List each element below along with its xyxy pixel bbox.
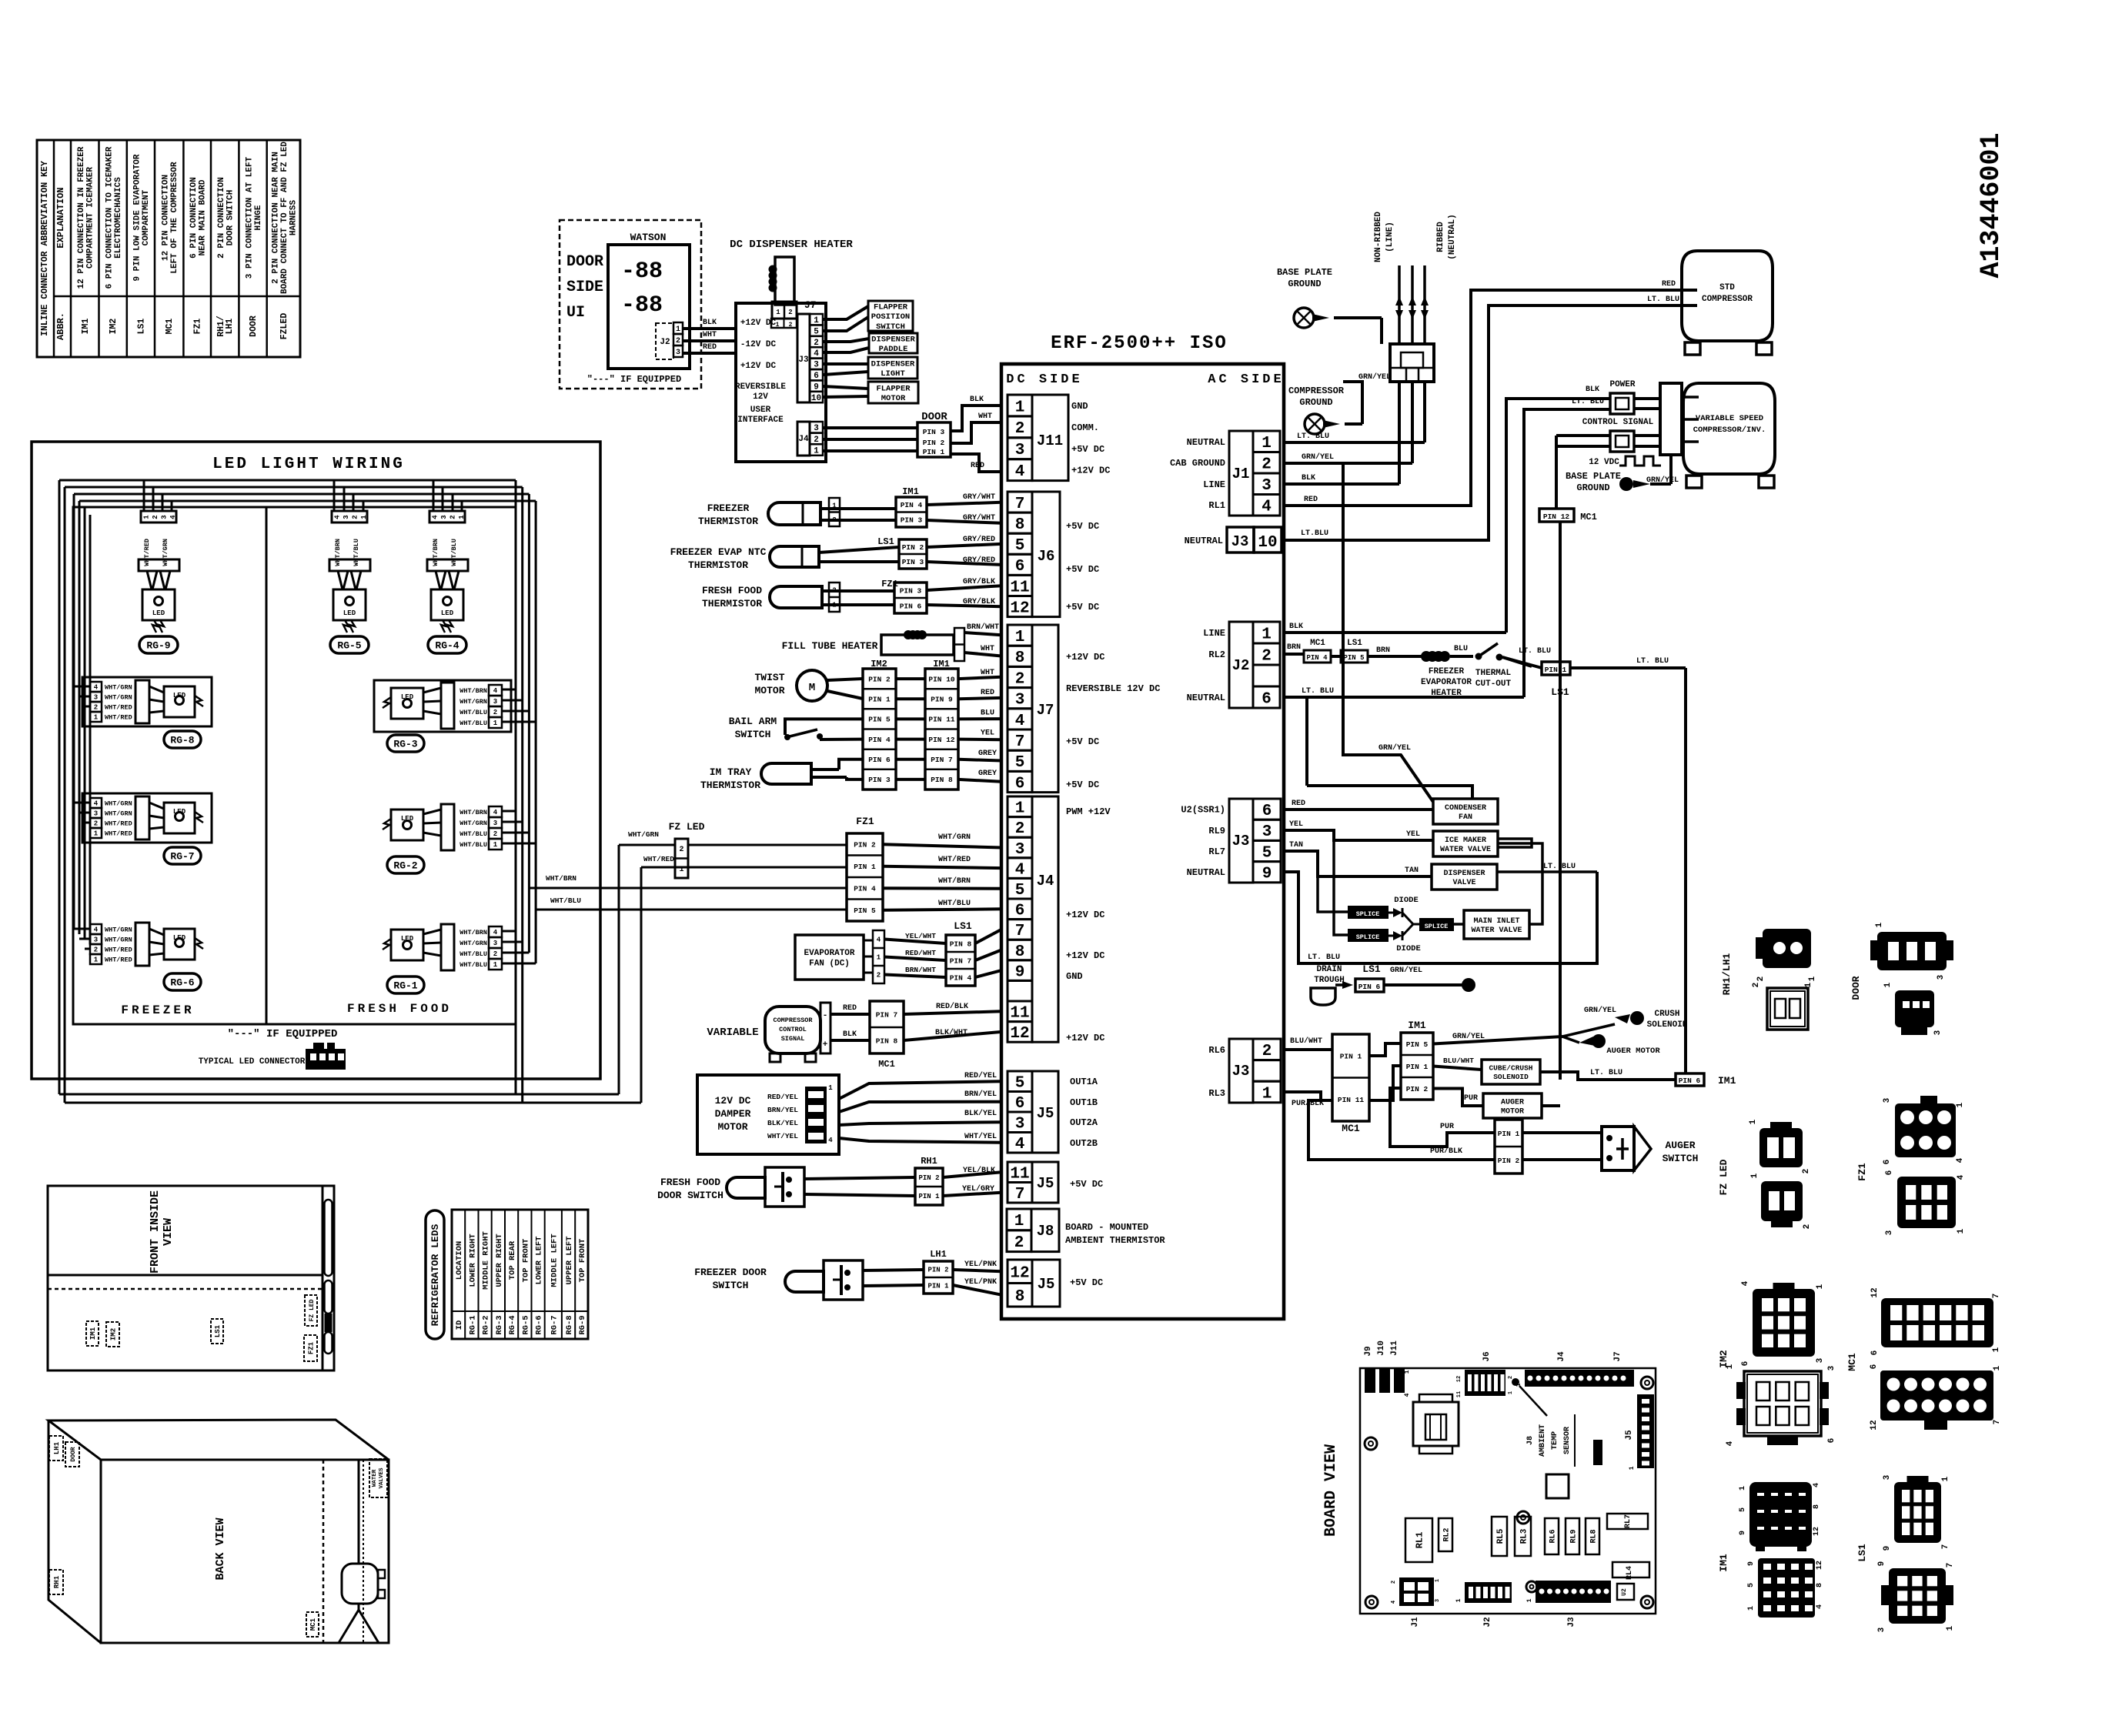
svg-text:LT. BLU: LT. BLU — [1590, 1069, 1622, 1077]
svg-text:(LINE): (LINE) — [1385, 222, 1395, 252]
svg-text:4: 4 — [1015, 713, 1025, 730]
svg-text:1: 1 — [1262, 626, 1272, 643]
svg-text:PIN 8: PIN 8 — [876, 1037, 898, 1045]
svg-text:REFRIGERATOR LEDS: REFRIGERATOR LEDS — [429, 1224, 441, 1326]
svg-text:3: 3 — [1015, 692, 1025, 709]
svg-text:5: 5 — [1015, 1075, 1025, 1093]
svg-text:DOOR: DOOR — [566, 253, 603, 271]
svg-text:UPPER RIGHT: UPPER RIGHT — [495, 1234, 504, 1287]
svg-text:LED LIGHT WIRING: LED LIGHT WIRING — [212, 456, 405, 473]
svg-text:4: 4 — [1262, 499, 1272, 516]
svg-text:+5V DC: +5V DC — [1066, 521, 1099, 532]
svg-text:WHT/GRN: WHT/GRN — [105, 800, 132, 808]
svg-text:WHT/BLU: WHT/BLU — [450, 539, 458, 566]
svg-text:GND: GND — [1066, 971, 1083, 982]
svg-text:12 PIN CONNECTION IN FREEZER: 12 PIN CONNECTION IN FREEZER — [77, 146, 86, 289]
svg-text:+5V DC: +5V DC — [1066, 564, 1099, 575]
svg-text:2: 2 — [1015, 820, 1025, 838]
svg-text:TAN: TAN — [1289, 841, 1303, 850]
svg-text:+12V DC: +12V DC — [1066, 652, 1104, 663]
svg-text:SOLENOID: SOLENOID — [1493, 1073, 1529, 1081]
svg-text:7: 7 — [1015, 923, 1025, 940]
svg-text:3: 3 — [493, 698, 497, 706]
svg-text:MOTOR: MOTOR — [881, 394, 906, 403]
svg-text:GRY/RED: GRY/RED — [963, 535, 995, 544]
svg-text:WHT/BLU: WHT/BLU — [938, 899, 971, 908]
svg-text:DAMPER: DAMPER — [715, 1108, 751, 1120]
svg-text:WHT/BLU: WHT/BLU — [459, 961, 487, 969]
svg-text:VALVES: VALVES — [379, 1467, 385, 1489]
svg-text:2: 2 — [94, 704, 98, 712]
svg-text:J7: J7 — [804, 299, 817, 311]
svg-text:WHT/BRN: WHT/BRN — [432, 539, 439, 566]
svg-text:LS1: LS1 — [1551, 686, 1569, 698]
svg-text:5: 5 — [1015, 537, 1025, 555]
svg-text:8: 8 — [1015, 649, 1025, 667]
svg-text:NEUTRAL: NEUTRAL — [1187, 693, 1225, 703]
svg-text:FRESH FOOD: FRESH FOOD — [660, 1177, 720, 1188]
svg-text:PIN 2: PIN 2 — [927, 1267, 948, 1274]
svg-text:12: 12 — [1456, 1376, 1462, 1382]
svg-text:3: 3 — [493, 820, 497, 827]
svg-text:2: 2 — [1015, 670, 1025, 688]
svg-text:YEL: YEL — [981, 729, 994, 738]
svg-text:DOOR SWITCH: DOOR SWITCH — [657, 1190, 723, 1201]
svg-text:PIN 12: PIN 12 — [1543, 512, 1570, 521]
svg-text:3: 3 — [94, 936, 98, 944]
svg-text:12: 12 — [1870, 1420, 1879, 1430]
svg-text:LIGHT: LIGHT — [881, 369, 905, 379]
svg-text:YEL/WHT: YEL/WHT — [905, 932, 936, 940]
svg-text:3: 3 — [1933, 1030, 1943, 1035]
svg-text:J4: J4 — [1037, 873, 1054, 890]
svg-text:COMPARTMENT: COMPARTMENT — [142, 189, 151, 245]
svg-text:PIN 1: PIN 1 — [1406, 1063, 1429, 1071]
svg-text:3: 3 — [814, 424, 819, 433]
svg-text:RG-6: RG-6 — [535, 1315, 544, 1334]
svg-text:WHT/GRN: WHT/GRN — [105, 926, 132, 934]
svg-text:2: 2 — [679, 846, 683, 854]
svg-text:J5: J5 — [1038, 1276, 1055, 1293]
svg-text:1: 1 — [1526, 1598, 1533, 1602]
svg-text:PIN 5: PIN 5 — [868, 716, 891, 724]
svg-text:LOWER LEFT: LOWER LEFT — [535, 1236, 544, 1284]
svg-text:ICE MAKER: ICE MAKER — [1445, 836, 1486, 845]
svg-text:DRAIN: DRAIN — [1316, 965, 1342, 974]
svg-text:LT. BLU: LT. BLU — [1647, 295, 1679, 304]
svg-text:YEL/BLK: YEL/BLK — [963, 1166, 995, 1175]
svg-text:PUR: PUR — [1440, 1123, 1454, 1131]
svg-text:UI: UI — [566, 304, 585, 322]
svg-text:RG-4: RG-4 — [435, 640, 459, 652]
svg-text:3: 3 — [676, 349, 680, 357]
svg-text:THERMISTOR: THERMISTOR — [702, 598, 762, 609]
svg-text:1: 1 — [877, 954, 881, 962]
svg-text:NEUTRAL: NEUTRAL — [1187, 437, 1225, 448]
svg-text:MC1: MC1 — [1310, 639, 1325, 648]
svg-text:2: 2 — [493, 709, 497, 716]
svg-text:VARIABLE SPEED: VARIABLE SPEED — [1696, 414, 1763, 423]
svg-text:IM1: IM1 — [902, 486, 919, 497]
svg-text:WHT/BRN: WHT/BRN — [459, 687, 487, 695]
svg-text:ABBR.: ABBR. — [55, 312, 66, 340]
svg-text:+12V DC: +12V DC — [740, 319, 777, 328]
svg-text:IM2: IM2 — [109, 319, 119, 335]
svg-text:RL1: RL1 — [1208, 500, 1225, 511]
svg-text:PIN 1: PIN 1 — [1498, 1130, 1520, 1138]
svg-text:RED: RED — [971, 462, 984, 470]
svg-text:FZLED: FZLED — [279, 313, 289, 340]
svg-text:BLK: BLK — [1302, 474, 1315, 482]
svg-text:RG-5: RG-5 — [337, 640, 361, 652]
svg-text:RL2: RL2 — [1208, 649, 1225, 660]
svg-text:LS1: LS1 — [877, 536, 894, 547]
svg-text:2: 2 — [152, 515, 159, 519]
svg-text:GRN/YEL: GRN/YEL — [1584, 1006, 1616, 1015]
svg-text:RG-7: RG-7 — [170, 851, 194, 863]
svg-text:12: 12 — [1813, 1527, 1821, 1536]
svg-text:DOOR: DOOR — [1850, 976, 1862, 1000]
svg-text:CRUSH: CRUSH — [1654, 1010, 1679, 1019]
svg-text:RL7: RL7 — [1624, 1514, 1632, 1528]
svg-text:SENSOR: SENSOR — [1563, 1427, 1572, 1454]
svg-text:FLAPPER: FLAPPER — [876, 384, 911, 393]
svg-text:YEL: YEL — [1289, 820, 1303, 829]
svg-text:1: 1 — [94, 956, 99, 964]
svg-text:1: 1 — [1875, 922, 1884, 927]
svg-text:BLU: BLU — [981, 709, 994, 717]
svg-text:4: 4 — [334, 515, 342, 519]
svg-text:PIN 1: PIN 1 — [1545, 666, 1567, 674]
svg-text:LED: LED — [152, 609, 165, 617]
svg-text:RED: RED — [1662, 280, 1676, 289]
svg-text:FREEZER: FREEZER — [1429, 667, 1465, 676]
svg-text:J2: J2 — [660, 338, 670, 347]
svg-text:6: 6 — [1870, 1350, 1880, 1356]
svg-text:TROUGH: TROUGH — [1314, 976, 1345, 985]
svg-text:J3: J3 — [1232, 1063, 1250, 1080]
svg-text:WHT/BLU: WHT/BLU — [459, 950, 487, 958]
svg-text:J5: J5 — [1037, 1105, 1054, 1122]
svg-text:PIN 7: PIN 7 — [950, 956, 972, 965]
svg-text:+12V DC: +12V DC — [1071, 466, 1110, 476]
svg-text:J7: J7 — [1037, 702, 1054, 719]
svg-text:J8: J8 — [1037, 1223, 1054, 1240]
svg-text:J3: J3 — [1232, 833, 1250, 850]
svg-text:LED: LED — [173, 808, 186, 816]
svg-text:1: 1 — [676, 325, 680, 334]
svg-text:BLK/YEL: BLK/YEL — [964, 1109, 997, 1118]
svg-text:LINE: LINE — [1203, 479, 1225, 490]
svg-text:2: 2 — [1752, 983, 1761, 988]
svg-text:PIN 4: PIN 4 — [854, 885, 876, 893]
svg-text:-: - — [823, 1011, 828, 1020]
svg-text:WHT/GRN: WHT/GRN — [628, 830, 659, 839]
svg-text:GRY/RED: GRY/RED — [963, 556, 995, 565]
svg-text:PWM +12V: PWM +12V — [1066, 806, 1111, 817]
svg-text:3: 3 — [1877, 1627, 1886, 1632]
svg-text:FAN: FAN — [1459, 813, 1472, 822]
svg-text:1: 1 — [1015, 800, 1025, 818]
svg-text:IM1: IM1 — [1408, 1020, 1426, 1031]
svg-text:IM1: IM1 — [81, 319, 91, 335]
svg-text:+5V DC: +5V DC — [1070, 1277, 1103, 1288]
svg-text:4: 4 — [94, 684, 99, 692]
svg-text:BLK/YEL: BLK/YEL — [767, 1119, 798, 1127]
svg-text:PIN 1: PIN 1 — [918, 1193, 940, 1200]
svg-text:PIN 6: PIN 6 — [900, 602, 922, 610]
svg-text:WHT/BLU: WHT/BLU — [353, 539, 360, 566]
svg-text:GRN/YEL: GRN/YEL — [1452, 1032, 1485, 1041]
svg-text:4: 4 — [94, 800, 99, 808]
svg-text:SPLICE: SPLICE — [1356, 910, 1380, 918]
svg-text:GRY/BLK: GRY/BLK — [963, 577, 995, 586]
svg-text:LED: LED — [401, 815, 414, 823]
svg-text:RL9: RL9 — [1208, 826, 1225, 836]
svg-text:1: 1 — [1015, 629, 1025, 646]
svg-text:BRN/YEL: BRN/YEL — [767, 1106, 798, 1114]
svg-text:+12V DC: +12V DC — [1066, 910, 1104, 920]
svg-text:9: 9 — [1877, 1561, 1886, 1567]
svg-text:1: 1 — [493, 961, 498, 969]
svg-text:1: 1 — [1014, 1213, 1024, 1230]
svg-text:OUT2A: OUT2A — [1070, 1117, 1098, 1128]
svg-text:1: 1 — [493, 719, 498, 727]
svg-text:WHT/RED: WHT/RED — [105, 946, 132, 954]
svg-text:BLK: BLK — [843, 1030, 857, 1039]
svg-text:WHT/RED: WHT/RED — [105, 820, 132, 828]
svg-text:PIN 12: PIN 12 — [928, 736, 955, 744]
svg-text:LS1: LS1 — [1362, 963, 1381, 975]
svg-text:PIN 10: PIN 10 — [928, 675, 955, 683]
svg-text:2 PIN CONNECTION NEAR MAIN: 2 PIN CONNECTION NEAR MAIN — [271, 152, 280, 284]
svg-text:PIN 5: PIN 5 — [1406, 1040, 1429, 1049]
svg-text:6: 6 — [1741, 1361, 1750, 1367]
svg-text:1: 1 — [814, 446, 819, 456]
svg-text:CUBE/CRUSH: CUBE/CRUSH — [1489, 1064, 1532, 1073]
svg-text:RG-7: RG-7 — [550, 1315, 559, 1334]
svg-text:2: 2 — [1262, 1043, 1272, 1060]
svg-text:J3: J3 — [1231, 533, 1249, 550]
svg-text:SWITCH: SWITCH — [876, 322, 905, 332]
svg-text:3: 3 — [440, 515, 448, 519]
svg-text:FZ LED: FZ LED — [669, 821, 705, 833]
svg-text:1: 1 — [1262, 1085, 1272, 1103]
svg-text:+5V DC: +5V DC — [1066, 602, 1099, 613]
svg-text:WHT/RED: WHT/RED — [643, 855, 674, 863]
svg-text:J1: J1 — [1232, 466, 1250, 482]
svg-text:RL4: RL4 — [1626, 1566, 1634, 1580]
svg-text:FRESH FOOD: FRESH FOOD — [702, 585, 762, 596]
svg-text:3 PIN CONNECTION AT LEFT: 3 PIN CONNECTION AT LEFT — [245, 156, 254, 279]
svg-text:2: 2 — [1015, 420, 1025, 438]
svg-text:WATER VALVE: WATER VALVE — [1471, 926, 1522, 935]
svg-text:J10: J10 — [1377, 1340, 1386, 1356]
svg-text:PIN 2: PIN 2 — [923, 439, 945, 447]
svg-text:WHT/BRN: WHT/BRN — [546, 874, 576, 883]
svg-text:LEFT OF THE COMPRESSOR: LEFT OF THE COMPRESSOR — [170, 162, 179, 274]
svg-text:LT. BLU: LT. BLU — [1297, 432, 1329, 441]
svg-text:2: 2 — [788, 309, 792, 316]
svg-text:WHT: WHT — [981, 669, 994, 677]
svg-text:-88: -88 — [621, 292, 663, 319]
svg-text:MC1: MC1 — [1342, 1123, 1360, 1134]
svg-text:+12V DC: +12V DC — [1066, 1033, 1104, 1043]
svg-text:12: 12 — [1870, 1287, 1880, 1297]
svg-text:LS1: LS1 — [954, 920, 972, 932]
svg-text:3: 3 — [1435, 1599, 1441, 1602]
svg-text:6: 6 — [1015, 775, 1025, 793]
svg-text:OUT1A: OUT1A — [1070, 1077, 1098, 1087]
svg-text:4: 4 — [1391, 1601, 1397, 1604]
svg-text:BOARD VIEW: BOARD VIEW — [1322, 1444, 1340, 1537]
svg-text:YEL: YEL — [1406, 830, 1420, 839]
svg-text:5: 5 — [1262, 844, 1272, 862]
svg-text:PIN 6: PIN 6 — [868, 756, 891, 764]
svg-text:LT. BLU: LT. BLU — [1519, 647, 1551, 656]
svg-text:3: 3 — [1262, 823, 1272, 841]
svg-text:MOTOR: MOTOR — [717, 1121, 747, 1133]
svg-text:TAN: TAN — [1405, 866, 1419, 875]
svg-text:GROUND: GROUND — [1576, 482, 1609, 493]
svg-text:PIN 2: PIN 2 — [1406, 1085, 1429, 1093]
svg-text:TOP REAR: TOP REAR — [508, 1240, 517, 1280]
svg-text:ID: ID — [455, 1320, 464, 1330]
svg-text:PIN 6: PIN 6 — [1358, 983, 1381, 991]
svg-text:PIN 4: PIN 4 — [1306, 654, 1328, 662]
svg-text:BLK: BLK — [970, 396, 984, 404]
svg-text:2: 2 — [493, 830, 497, 838]
svg-text:BOARD - MOUNTED: BOARD - MOUNTED — [1065, 1222, 1148, 1233]
svg-text:3: 3 — [94, 810, 98, 818]
svg-text:FREEZER: FREEZER — [121, 1003, 194, 1017]
svg-text:4: 4 — [1816, 1604, 1824, 1609]
svg-text:RED: RED — [1292, 800, 1305, 808]
svg-text:4: 4 — [828, 1137, 833, 1144]
svg-text:RG-3: RG-3 — [393, 739, 417, 750]
svg-text:MC1: MC1 — [878, 1059, 895, 1070]
svg-text:LS1: LS1 — [136, 319, 146, 335]
svg-text:6 PIN CONNECTION: 6 PIN CONNECTION — [189, 177, 199, 259]
svg-text:11: 11 — [1010, 579, 1029, 596]
svg-text:GROUND: GROUND — [1288, 279, 1321, 289]
svg-text:MC1: MC1 — [1846, 1353, 1858, 1371]
svg-text:4: 4 — [877, 936, 881, 944]
svg-text:4: 4 — [94, 926, 99, 934]
svg-text:1: 1 — [360, 515, 368, 519]
svg-text:5: 5 — [1747, 1583, 1756, 1587]
svg-text:1: 1 — [1726, 1364, 1735, 1369]
svg-text:RL3: RL3 — [1519, 1528, 1529, 1544]
svg-text:WHT/BLU: WHT/BLU — [459, 709, 487, 716]
svg-text:BACK VIEW: BACK VIEW — [214, 1517, 227, 1580]
svg-text:SIDE: SIDE — [566, 279, 603, 296]
svg-text:12 VDC: 12 VDC — [1589, 458, 1619, 467]
svg-text:GRY/WHT: GRY/WHT — [963, 492, 995, 502]
svg-text:RL3: RL3 — [1208, 1088, 1225, 1099]
svg-text:GREY: GREY — [978, 749, 997, 758]
svg-text:CUT-OUT: CUT-OUT — [1475, 679, 1512, 689]
svg-text:9: 9 — [1739, 1531, 1747, 1535]
svg-text:1: 1 — [1883, 982, 1893, 987]
svg-text:J1: J1 — [1411, 1617, 1420, 1627]
svg-text:+5V DC: +5V DC — [1071, 444, 1104, 455]
svg-text:ERF-2500++ ISO: ERF-2500++ ISO — [1051, 333, 1228, 354]
svg-text:5: 5 — [1015, 882, 1025, 900]
svg-text:AUGER MOTOR: AUGER MOTOR — [1606, 1047, 1660, 1056]
svg-text:FZ1: FZ1 — [193, 319, 203, 335]
svg-text:7: 7 — [1015, 733, 1025, 751]
svg-text:POSITION: POSITION — [871, 312, 910, 322]
svg-text:1: 1 — [776, 322, 780, 329]
svg-text:VARIABLE: VARIABLE — [707, 1027, 758, 1039]
svg-text:MC1: MC1 — [309, 1617, 317, 1631]
svg-text:PIN 6: PIN 6 — [1679, 1077, 1701, 1085]
svg-text:6: 6 — [1015, 1095, 1025, 1113]
svg-text:PIN 8: PIN 8 — [931, 776, 953, 784]
svg-text:1: 1 — [1262, 435, 1272, 452]
svg-text:9: 9 — [1747, 1561, 1756, 1566]
svg-text:STD: STD — [1719, 283, 1735, 292]
svg-text:12: 12 — [1010, 1025, 1029, 1043]
svg-text:TEMP: TEMP — [1551, 1431, 1559, 1450]
svg-text:3: 3 — [1015, 1116, 1025, 1133]
svg-text:GRN/YEL: GRN/YEL — [1646, 476, 1679, 485]
svg-text:5: 5 — [1015, 754, 1025, 772]
svg-text:CONTROL: CONTROL — [779, 1026, 807, 1033]
svg-text:7: 7 — [1992, 1294, 2001, 1299]
svg-text:PIN 7: PIN 7 — [931, 756, 953, 764]
svg-text:9: 9 — [1015, 963, 1025, 981]
svg-text:1: 1 — [1749, 1119, 1758, 1124]
svg-text:LED: LED — [441, 609, 454, 617]
svg-text:WHT/BRN: WHT/BRN — [459, 929, 487, 936]
svg-text:RG-9: RG-9 — [578, 1315, 587, 1334]
svg-text:MAIN INLET: MAIN INLET — [1473, 917, 1519, 926]
svg-text:4: 4 — [169, 515, 177, 519]
svg-text:4: 4 — [1741, 1280, 1750, 1286]
svg-text:PIN 2: PIN 2 — [868, 675, 891, 683]
svg-text:WHT/RED: WHT/RED — [105, 956, 132, 964]
svg-text:4: 4 — [1015, 463, 1025, 481]
svg-text:+5V DC: +5V DC — [1070, 1179, 1103, 1190]
svg-text:YEL/PNK: YEL/PNK — [964, 1277, 997, 1287]
svg-text:ELECTROMECHANICS: ELECTROMECHANICS — [114, 177, 123, 259]
svg-text:BLU: BLU — [1454, 645, 1468, 653]
svg-text:LS1: LS1 — [214, 1324, 222, 1337]
svg-text:PIN 11: PIN 11 — [1338, 1096, 1365, 1104]
svg-text:MIDDLE LEFT: MIDDLE LEFT — [550, 1234, 559, 1287]
svg-text:IM1: IM1 — [1718, 1554, 1729, 1572]
svg-text:BASE PLATE: BASE PLATE — [1277, 267, 1332, 278]
svg-text:RED: RED — [981, 689, 994, 697]
svg-text:TYPICAL LED CONNECTOR: TYPICAL LED CONNECTOR — [199, 1057, 306, 1067]
svg-text:2: 2 — [94, 820, 98, 828]
svg-text:LINE: LINE — [1203, 628, 1225, 639]
svg-text:EXPLANATION: EXPLANATION — [55, 187, 66, 248]
svg-text:THERMISTOR: THERMISTOR — [688, 559, 748, 571]
svg-text:DISPENSER: DISPENSER — [871, 335, 915, 344]
svg-text:TWIST: TWIST — [754, 672, 784, 683]
svg-text:BAIL ARM: BAIL ARM — [729, 716, 777, 727]
svg-text:RED/WHT: RED/WHT — [905, 949, 936, 957]
svg-text:J9: J9 — [1364, 1346, 1373, 1356]
svg-text:POWER: POWER — [1609, 380, 1635, 389]
svg-text:1: 1 — [1941, 1476, 1950, 1481]
svg-text:LT.BLU: LT.BLU — [1301, 529, 1328, 538]
svg-text:LED: LED — [173, 934, 186, 942]
svg-text:3: 3 — [1816, 1357, 1825, 1363]
